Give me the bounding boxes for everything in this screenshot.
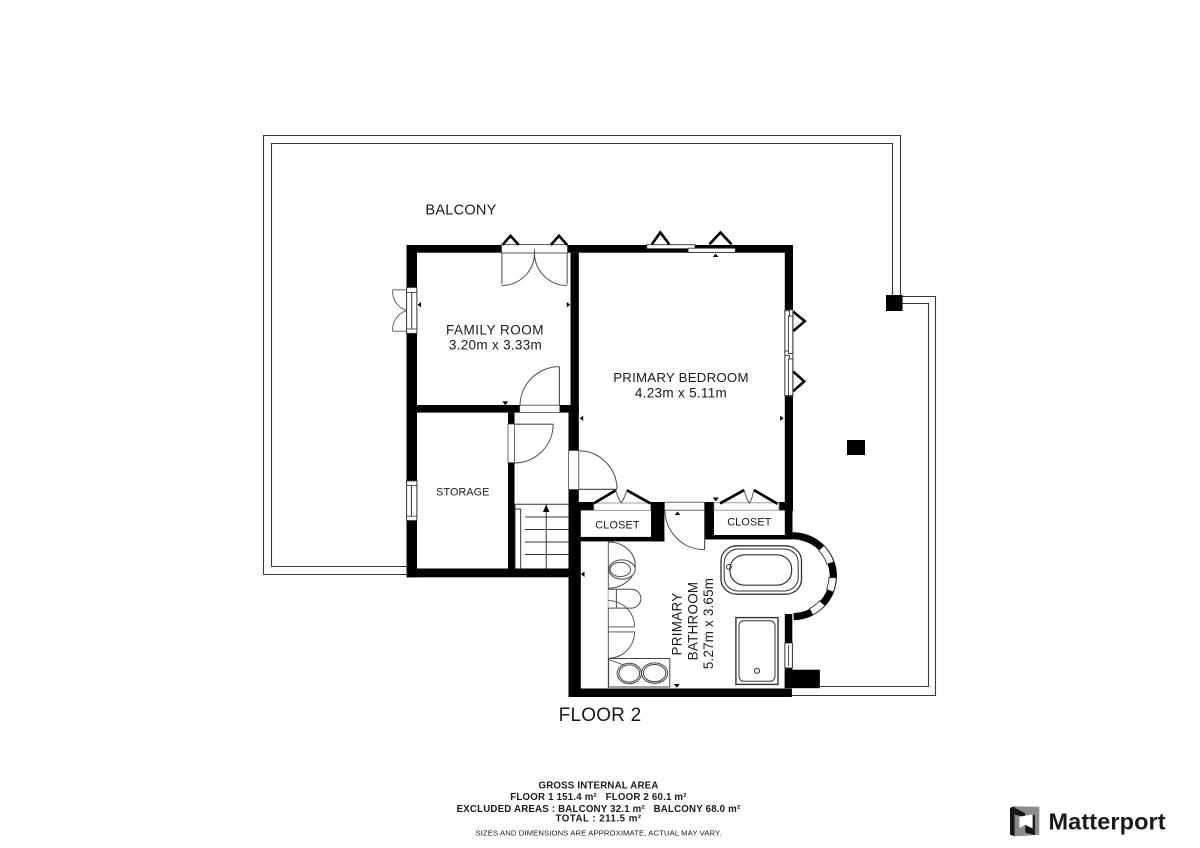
- svg-text:4.23m x 5.11m: 4.23m x 5.11m: [635, 386, 727, 401]
- svg-text:3.20m x 3.33m: 3.20m x 3.33m: [449, 338, 542, 353]
- svg-text:BATHROOM: BATHROOM: [686, 582, 701, 661]
- svg-text:PRIMARY: PRIMARY: [669, 593, 684, 656]
- svg-text:5.27m x 3.65m: 5.27m x 3.65m: [701, 578, 716, 669]
- svg-text:FAMILY ROOM: FAMILY ROOM: [446, 323, 544, 338]
- svg-text:CLOSET: CLOSET: [727, 516, 772, 528]
- svg-text:PRIMARY BEDROOM: PRIMARY BEDROOM: [613, 370, 749, 385]
- svg-text:CLOSET: CLOSET: [595, 519, 640, 531]
- svg-text:FLOOR 1 151.4 m² FLOOR 2 60.: FLOOR 1 151.4 m² FLOOR 2 60.1 m²: [510, 792, 687, 803]
- svg-text:SIZES AND DIMENSIONS ARE APPRO: SIZES AND DIMENSIONS ARE APPROXIMATE, AC…: [475, 829, 721, 838]
- svg-text:GROSS INTERNAL AREA: GROSS INTERNAL AREA: [538, 780, 658, 791]
- svg-text:BALCONY: BALCONY: [425, 203, 496, 219]
- svg-text:STORAGE: STORAGE: [436, 487, 489, 499]
- svg-text:FLOOR 2: FLOOR 2: [559, 705, 642, 726]
- svg-text:TOTAL : 211.5 m²: TOTAL : 211.5 m²: [555, 814, 641, 825]
- svg-text:Matterport: Matterport: [1049, 809, 1166, 835]
